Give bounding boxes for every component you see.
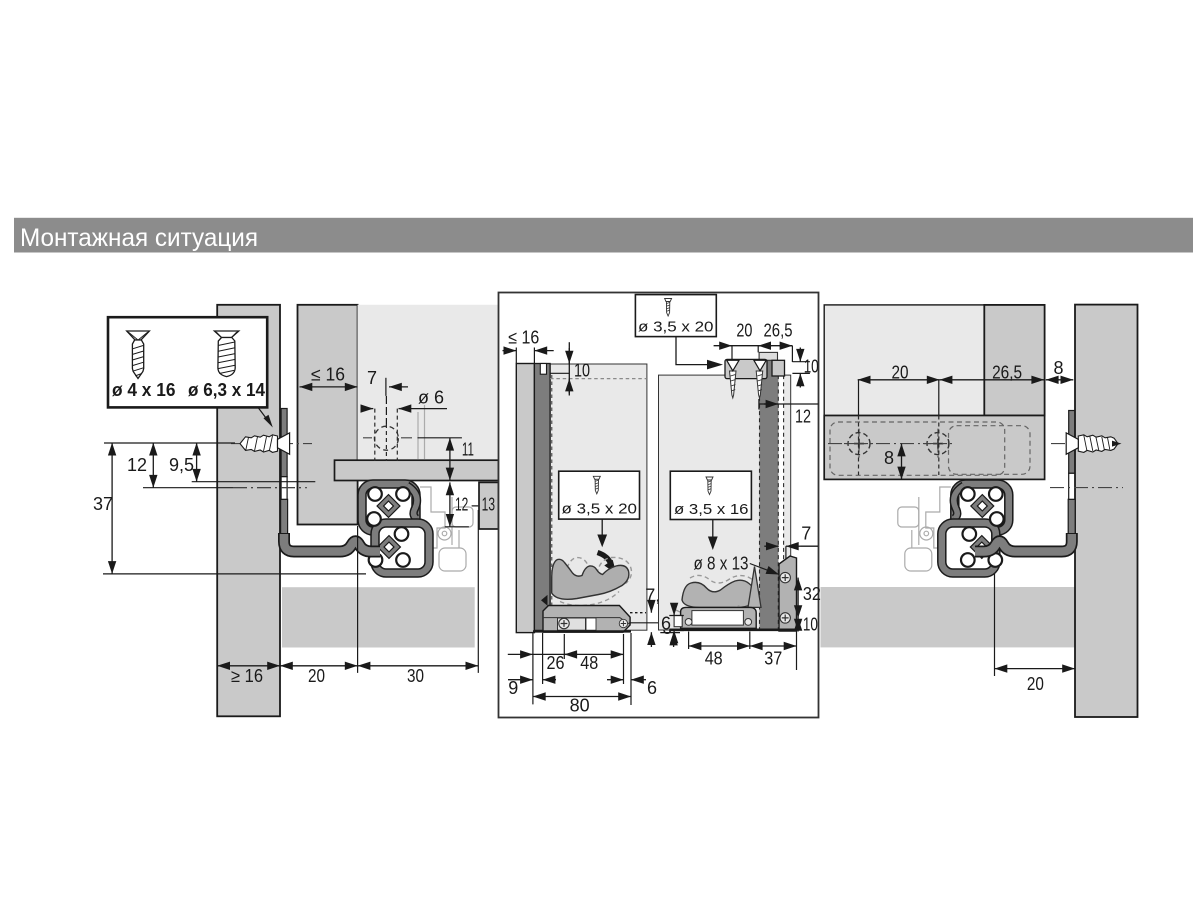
svg-text:6: 6 — [647, 678, 657, 698]
svg-text:11: 11 — [462, 440, 474, 460]
svg-text:ø 8 x 13: ø 8 x 13 — [694, 554, 749, 574]
svg-text:8: 8 — [1054, 358, 1064, 378]
svg-text:20: 20 — [1027, 674, 1044, 694]
svg-text:≥ 16: ≥ 16 — [231, 666, 263, 686]
svg-text:10: 10 — [574, 361, 590, 381]
svg-text:48: 48 — [705, 648, 723, 668]
svg-text:12: 12 — [795, 407, 811, 427]
svg-text:48: 48 — [580, 653, 598, 673]
svg-text:37: 37 — [93, 494, 113, 514]
svg-text:32: 32 — [803, 584, 821, 604]
svg-text:20: 20 — [736, 321, 752, 341]
svg-text:80: 80 — [570, 696, 590, 716]
svg-text:8: 8 — [884, 448, 894, 468]
svg-text:≤ 16: ≤ 16 — [311, 365, 345, 385]
svg-text:ø 6: ø 6 — [418, 388, 444, 408]
svg-text:10: 10 — [803, 615, 818, 635]
svg-text:37: 37 — [764, 648, 782, 668]
svg-text:20: 20 — [308, 666, 325, 686]
svg-text:≤ 16: ≤ 16 — [508, 328, 539, 348]
svg-text:9: 9 — [508, 678, 518, 698]
svg-text:ø 3,5 x 20: ø 3,5 x 20 — [562, 501, 638, 518]
svg-text:ø 6,3 x 14: ø 6,3 x 14 — [188, 380, 265, 400]
svg-text:ø 4 x 16: ø 4 x 16 — [112, 380, 176, 400]
svg-text:7: 7 — [801, 524, 811, 544]
svg-text:12 – 13: 12 – 13 — [455, 495, 495, 515]
svg-text:9,5: 9,5 — [169, 455, 194, 475]
svg-text:12: 12 — [127, 455, 147, 475]
svg-text:ø 3,5 x 20: ø 3,5 x 20 — [638, 319, 714, 336]
svg-text:Монтажная ситуация: Монтажная ситуация — [20, 224, 258, 252]
svg-text:ø 3,5 x 16: ø 3,5 x 16 — [674, 501, 749, 518]
svg-text:26,5: 26,5 — [764, 321, 793, 341]
svg-text:7: 7 — [367, 368, 377, 388]
svg-text:30: 30 — [407, 666, 424, 686]
svg-text:26: 26 — [547, 653, 565, 673]
